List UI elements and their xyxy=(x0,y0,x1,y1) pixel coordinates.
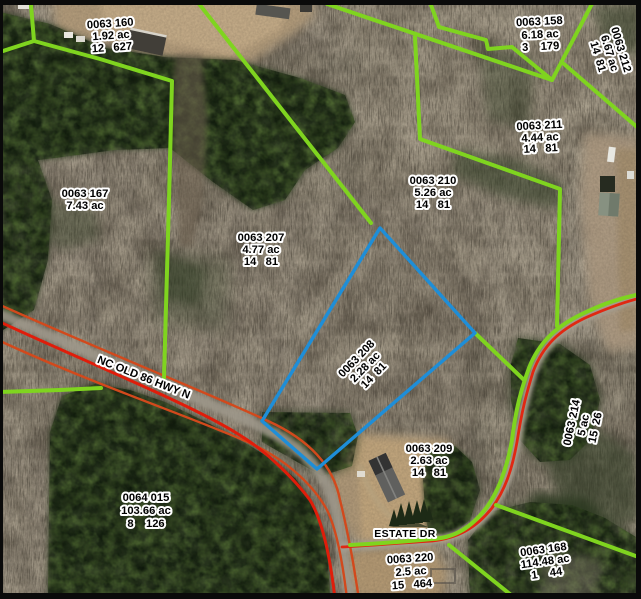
svg-text:0063 209: 0063 209 xyxy=(406,443,453,455)
svg-text:0063 210: 0063 210 xyxy=(410,175,457,187)
svg-text:0063 167: 0063 167 xyxy=(62,188,109,200)
svg-text:103.66 ac: 103.66 ac xyxy=(121,505,171,517)
svg-text:5.26 ac: 5.26 ac xyxy=(414,187,451,199)
svg-text:3 179: 3 179 xyxy=(522,40,560,54)
svg-text:4.77 ac: 4.77 ac xyxy=(242,244,279,256)
svg-text:7.43 ac: 7.43 ac xyxy=(66,200,103,212)
svg-text:0063 207: 0063 207 xyxy=(238,232,285,244)
svg-text:ESTATE DR: ESTATE DR xyxy=(374,528,436,540)
svg-text:14 81: 14 81 xyxy=(412,467,446,479)
svg-text:14 81: 14 81 xyxy=(523,142,558,156)
svg-text:8 126: 8 126 xyxy=(127,518,164,530)
svg-text:0064 015: 0064 015 xyxy=(123,492,170,504)
svg-text:0063 158: 0063 158 xyxy=(516,15,563,29)
svg-text:14 81: 14 81 xyxy=(416,199,450,211)
svg-text:2.5 ac: 2.5 ac xyxy=(395,565,427,579)
svg-text:2.63 ac: 2.63 ac xyxy=(410,455,447,467)
svg-text:14 81: 14 81 xyxy=(244,256,278,268)
